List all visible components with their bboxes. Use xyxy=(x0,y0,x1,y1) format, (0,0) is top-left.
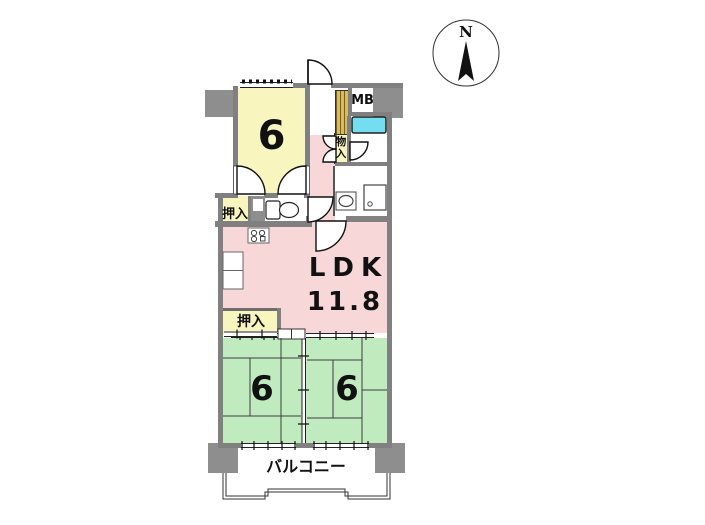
wall-washroom-left xyxy=(333,166,335,216)
wall-hall-toilet-joint xyxy=(306,216,312,227)
ldk-size-label: 11.8 xyxy=(300,287,390,317)
bedroom-left-size-label: 6 xyxy=(223,369,301,410)
bath-door-arc xyxy=(350,142,368,160)
closet-mid-label: 押入 xyxy=(228,311,274,331)
bedroom-door-right-leaf xyxy=(305,166,310,194)
entry-door-arc xyxy=(308,60,332,84)
hallway xyxy=(310,135,335,221)
toilet xyxy=(266,201,299,219)
bedroom-top-size-label: 6 xyxy=(238,114,305,158)
meter-box-label: MB xyxy=(350,93,375,108)
washbasin xyxy=(336,192,356,210)
bedroom-right-size-label: 6 xyxy=(307,369,387,410)
wall-mb-bottom xyxy=(348,112,392,116)
wall-left-main xyxy=(218,196,223,448)
wall-bedroom-bottom-left-stub xyxy=(233,193,238,198)
wall-bedroom-bottom-right-stub xyxy=(304,193,310,198)
wall-bedroom-right xyxy=(305,88,310,166)
balcony-label: バルコニー xyxy=(250,453,362,477)
wall-top-right-seg xyxy=(331,83,403,88)
wall-bath-washroom xyxy=(335,162,392,166)
closet-top-label: 押入 xyxy=(220,203,250,222)
bathtub xyxy=(352,117,386,133)
wall-bottom-a xyxy=(223,443,241,448)
wall-bedroom-bottom-mid-stub xyxy=(264,193,278,198)
storage-label: 物入 xyxy=(334,136,348,160)
compass-needle-icon xyxy=(458,41,474,81)
wall-bottom-b xyxy=(296,443,313,448)
ldk-name-label: LDK xyxy=(300,253,390,283)
wall-washroom-bottom xyxy=(346,216,392,222)
wall-closet-mid-right xyxy=(277,308,281,332)
utility-box-inner xyxy=(253,199,263,211)
shower-unit xyxy=(364,185,386,210)
floorplan-canvas: N 6 MB 物入 押入 LDK 11.8 押入 6 6 バルコニー xyxy=(0,0,705,525)
compass-north-label: N xyxy=(456,23,476,41)
wall-bottom-c xyxy=(369,443,387,448)
